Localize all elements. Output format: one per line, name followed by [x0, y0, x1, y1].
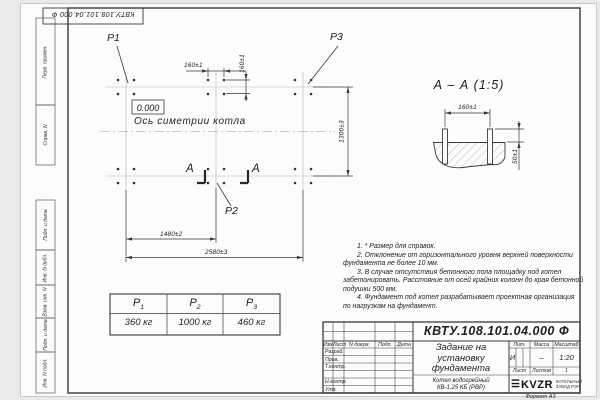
tb-lit-header: Лит. [509, 342, 530, 348]
strip-label-podp-data-1: Подп. и дата [41, 200, 51, 250]
tb-sheets-label: Листов [530, 368, 553, 374]
tb-header-data: Дата [395, 342, 413, 348]
tb-scale-value: 1:20 [553, 353, 580, 362]
load-table-value-p3: 460 кг [223, 317, 280, 328]
product-name-line1: Котел водогрейный [413, 378, 509, 384]
tb-sheet-label: Лист [509, 368, 530, 374]
section-letter-right: А [252, 163, 260, 175]
kvzr-logo-caption: КОТЕЛЬНЫЙ ЗАВОД РЭП [556, 380, 582, 389]
load-table-header-p2: P2 [167, 297, 223, 311]
load-table-header-p1: P1 [110, 297, 167, 311]
section-letter-left: А [186, 163, 194, 175]
tb-lit-value: И [509, 353, 516, 362]
plan-axis-lines [100, 72, 335, 196]
note-line: фундамента не более 10 мм. [343, 260, 579, 269]
note-line: 4. Фундамент под котел разрабатывает про… [343, 294, 579, 303]
kvzr-logo-icon: ☰ [511, 380, 520, 390]
kvzr-caption-line2: ЗАВОД РЭП [556, 385, 582, 390]
task-title-line2: установку [413, 353, 509, 364]
tb-header-list: Лист [333, 342, 344, 348]
kvzr-logo: ☰ KVZR КОТЕЛЬНЫЙ ЗАВОД РЭП [511, 377, 578, 392]
plan-dim-bolt-v-label: 160±1 [239, 54, 246, 73]
strip-label-perv-primen: Перв. примен. [41, 18, 51, 105]
tb-row-prov: Пров. [325, 357, 339, 363]
tb-row-nkontr: Н.контр. [325, 379, 347, 385]
tb-sheets-value: 1 [553, 368, 580, 374]
plan-dim-total-label: 2580±3 [205, 249, 227, 256]
level-mark: 0.000 [132, 103, 164, 113]
load-table-header-p3: P3 [223, 297, 280, 311]
load-label-p1: P1 [107, 32, 120, 44]
tb-row-razrab: Разраб. [325, 349, 344, 355]
tb-row-utv: Утв. [325, 387, 337, 393]
kvzr-logo-text: KVZR [521, 379, 553, 391]
format-label: Формат А3 [513, 394, 568, 400]
tb-scale-header: Масштаб [553, 342, 580, 348]
strip-label-inv-dubl: Инв. N дубл. [41, 250, 51, 285]
task-title-line3: фундамента [413, 363, 509, 374]
load-label-p2: P2 [225, 205, 238, 217]
tb-mass-value: – [530, 353, 553, 362]
load-table-value-p2: 1000 кг [167, 317, 223, 328]
task-title-line1: Задание на [413, 342, 509, 353]
anchor-bolt-right [488, 129, 493, 164]
strip-label-inv-podl: Инв. N подл. [41, 352, 51, 393]
tb-header-ndoc: N докум. [344, 342, 375, 348]
note-line: 1. * Размер для справок. [343, 243, 579, 252]
plan-dim-mid-label: 1480±2 [160, 231, 182, 238]
note-line: по нагрузкам на фундамент. [343, 303, 579, 312]
plan-dim-bolt-vertical [226, 71, 250, 101]
tb-header-podp: Подп. [375, 342, 395, 348]
section-dim-height-label: 50±1 [512, 149, 519, 164]
tb-mass-header: Масса [530, 342, 553, 348]
symmetry-axis-label: Ось симетрии котла [134, 116, 246, 127]
tb-header-izm: Изм. [323, 342, 333, 348]
strip-label-sprav-n: Справ. N [41, 105, 51, 165]
note-line: 3. В случае отсутствия бетонного пола пл… [343, 269, 579, 278]
note-line: забетонировать. Расстояние от осей крайн… [343, 277, 579, 286]
strip-label-podp-data-2: Подп. и дата [41, 318, 51, 352]
plan-dim-rows-label: 1300±3 [339, 120, 346, 142]
drawing-linework [0, 0, 600, 400]
section-dim-spacing-label: 160±1 [452, 104, 483, 111]
plan-dim-bolt-h-label: 160±1 [184, 62, 203, 69]
anchor-bolt-left [443, 129, 448, 164]
tb-row-tkontr: Т.контр. [325, 364, 346, 370]
corner-stamp: КВТУ.108.101.04.000 Ф [43, 10, 143, 17]
doc-number: КВТУ.108.101.04.000 Ф [413, 324, 580, 338]
section-detail [434, 109, 525, 170]
section-title: А – А (1:5) [419, 78, 519, 92]
section-cut-marks [197, 170, 248, 183]
load-table-value-p1: 360 кг [110, 317, 167, 328]
note-line: подушки 500 мм. [343, 286, 579, 295]
load-label-p3: P3 [330, 31, 343, 43]
notes-block: 1. * Размер для справок. 2. Отклонение о… [343, 243, 579, 311]
section-dim-spacing [445, 109, 490, 127]
drawing-sheet: КВТУ.108.101.04.000 Ф Перв. примен. Спра… [0, 0, 600, 400]
product-name-line2: КВ-1,25 КБ (РВР) [413, 385, 509, 391]
note-line: 2. Отклонение от горизонтального уровня … [343, 252, 579, 261]
strip-label-vzam-inv: Взам. инв. N [41, 285, 51, 318]
